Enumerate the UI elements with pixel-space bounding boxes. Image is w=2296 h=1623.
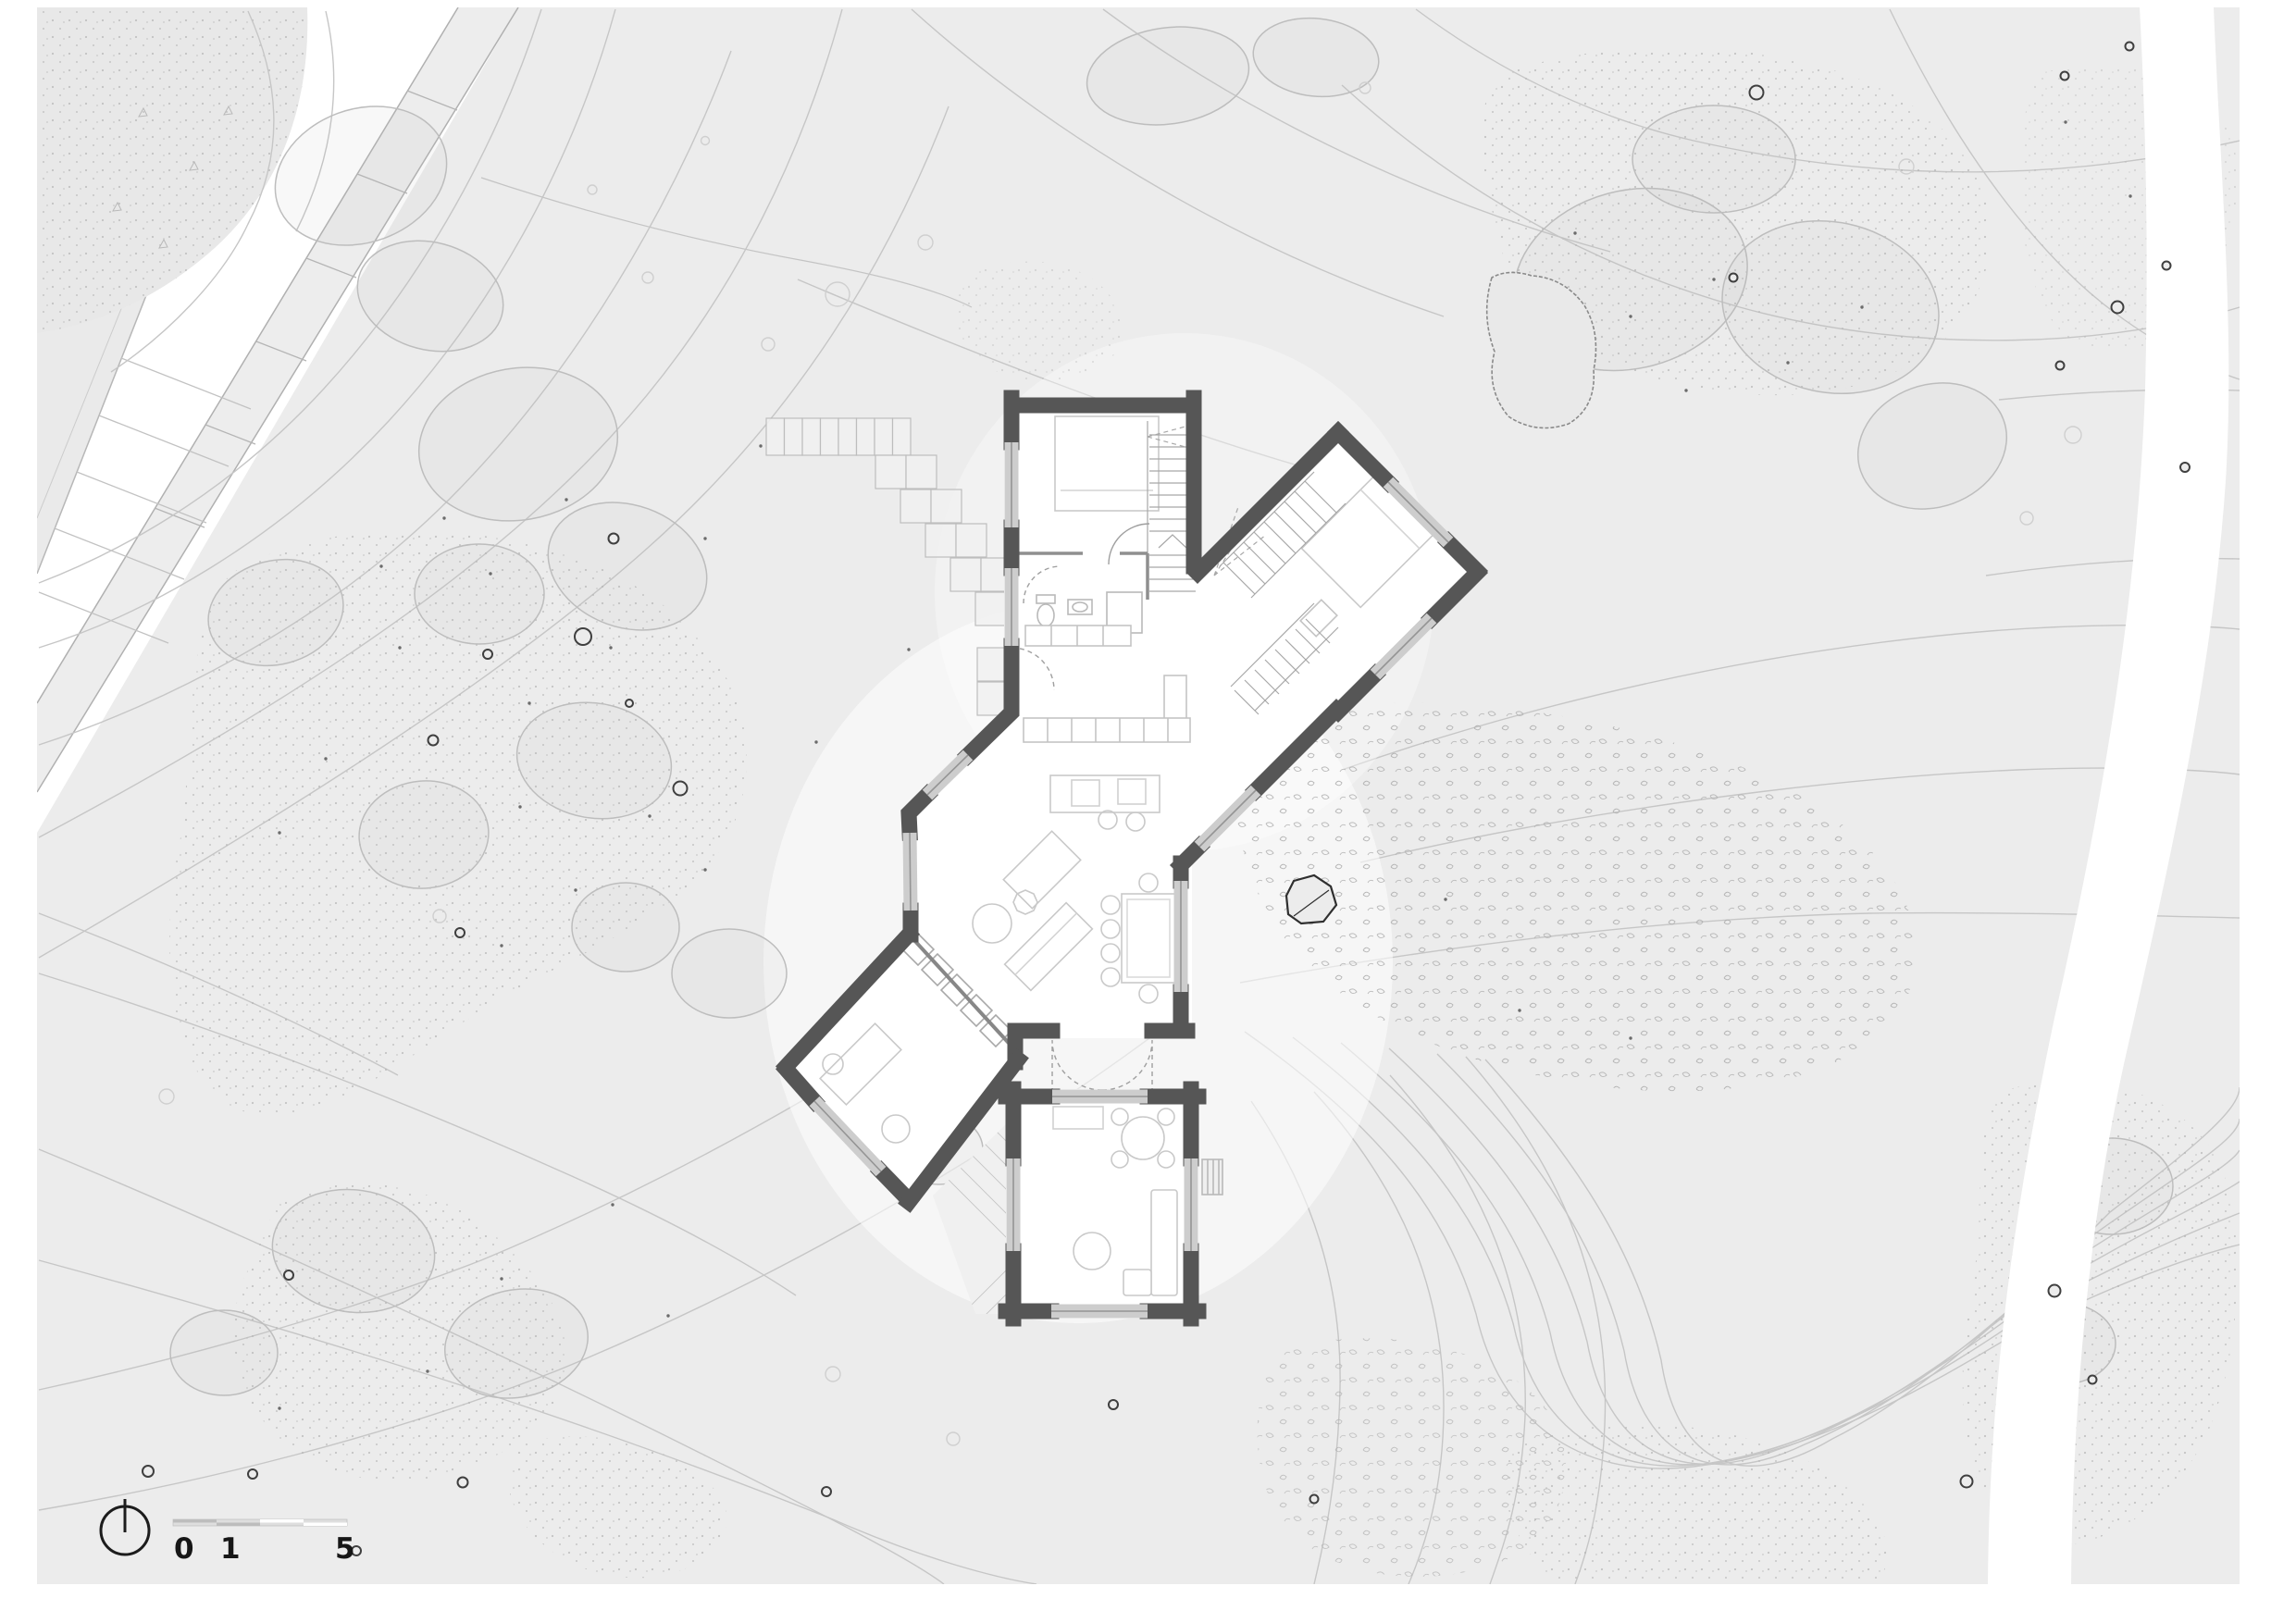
site-plan-drawing: 0 1 5 (0, 0, 2296, 1623)
bed-north (1055, 416, 1159, 511)
site-plan-page: 0 1 5 (0, 0, 2296, 1623)
external-unit (1202, 1159, 1222, 1195)
scale-label-0: 0 (174, 1532, 194, 1566)
scale-label-5: 5 (335, 1532, 355, 1566)
paver-row (766, 418, 911, 455)
scale-label-1: 1 (220, 1532, 241, 1566)
scale-bar-rule (173, 1519, 347, 1526)
